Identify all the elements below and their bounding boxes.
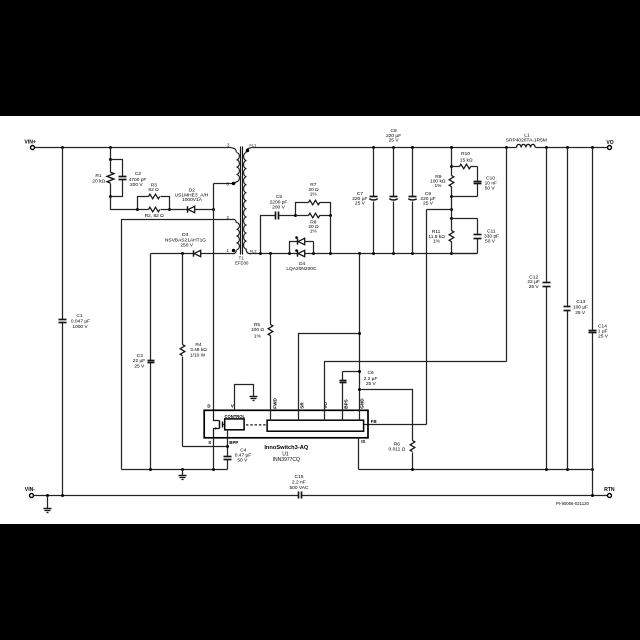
svg-text:IS: IS — [361, 439, 365, 444]
svg-text:50 V: 50 V — [237, 458, 248, 464]
svg-text:25 V: 25 V — [366, 381, 377, 387]
svg-text:INN3977CQ: INN3977CQ — [273, 457, 300, 463]
svg-text:20 kΩ: 20 kΩ — [92, 179, 105, 185]
svg-text:C13: C13 — [576, 299, 585, 305]
svg-text:2.2 nF: 2.2 nF — [292, 480, 306, 486]
svg-text:C11: C11 — [487, 229, 496, 235]
svg-text:200 V: 200 V — [130, 182, 143, 188]
svg-text:50 V: 50 V — [485, 186, 496, 192]
svg-text:R4: R4 — [195, 342, 201, 348]
svg-text:1%: 1% — [433, 239, 441, 245]
svg-text:R10: R10 — [461, 151, 470, 157]
svg-text:VIN-: VIN- — [25, 487, 35, 493]
svg-text:InnoSwitch3-AQ: InnoSwitch3-AQ — [264, 445, 308, 451]
svg-text:R1: R1 — [95, 173, 101, 179]
svg-text:1%: 1% — [434, 183, 442, 189]
svg-text:D3: D3 — [182, 232, 188, 238]
svg-text:VO: VO — [323, 402, 328, 409]
svg-text:15 kΩ: 15 kΩ — [460, 157, 473, 163]
svg-text:1/10 W: 1/10 W — [190, 352, 206, 358]
svg-text:1 µF: 1 µF — [598, 328, 608, 334]
svg-text:25 V: 25 V — [355, 200, 366, 206]
svg-text:0.47 µF: 0.47 µF — [235, 453, 252, 459]
svg-text:C10: C10 — [486, 176, 495, 182]
svg-text:200 V: 200 V — [272, 204, 285, 210]
svg-text:C5: C5 — [276, 194, 282, 200]
svg-text:D4: D4 — [299, 261, 305, 267]
svg-text:RTN: RTN — [604, 487, 615, 493]
svg-text:250 V: 250 V — [180, 242, 193, 248]
svg-text:CONTROL: CONTROL — [225, 414, 246, 419]
svg-text:VO: VO — [606, 140, 613, 146]
svg-text:1000 V: 1000 V — [72, 324, 88, 330]
svg-text:D: D — [207, 404, 210, 409]
svg-text:FL2: FL2 — [250, 248, 258, 253]
svg-text:100 µF: 100 µF — [573, 305, 588, 311]
svg-text:50 V: 50 V — [485, 239, 496, 245]
svg-text:25 V: 25 V — [134, 363, 145, 369]
svg-text:LQA20N200C: LQA20N200C — [286, 266, 317, 272]
svg-text:SR: SR — [299, 402, 304, 409]
svg-text:4700 pF: 4700 pF — [129, 177, 147, 183]
svg-text:PI-90066-021120: PI-90066-021120 — [556, 501, 589, 506]
svg-text:BPP: BPP — [229, 440, 238, 445]
svg-text:C1: C1 — [76, 313, 82, 319]
svg-text:3.48 kΩ: 3.48 kΩ — [190, 347, 207, 353]
svg-text:0.047 µF: 0.047 µF — [71, 319, 90, 325]
svg-text:VIN+: VIN+ — [24, 140, 35, 146]
svg-text:SRP4020TA-1R5M: SRP4020TA-1R5M — [506, 138, 547, 144]
svg-text:FL1: FL1 — [249, 143, 257, 148]
svg-text:C6: C6 — [367, 370, 373, 376]
svg-text:FB: FB — [371, 419, 377, 424]
svg-text:BPS: BPS — [343, 399, 348, 408]
svg-text:0.011 Ω: 0.011 Ω — [389, 447, 406, 453]
svg-text:1%: 1% — [310, 229, 318, 235]
svg-text:R5: R5 — [254, 322, 260, 328]
svg-text:25 V: 25 V — [423, 200, 434, 206]
svg-text:22 µF: 22 µF — [133, 358, 146, 364]
svg-text:2.2 µF: 2.2 µF — [364, 376, 378, 382]
svg-text:1%: 1% — [254, 334, 262, 340]
svg-text:S: S — [208, 440, 211, 445]
svg-text:C3: C3 — [137, 353, 143, 359]
svg-text:82 Ω: 82 Ω — [148, 187, 159, 193]
svg-text:C15: C15 — [295, 474, 304, 480]
svg-text:1%: 1% — [310, 191, 318, 197]
svg-text:EFD30: EFD30 — [235, 260, 249, 265]
svg-text:R2, 82 Ω: R2, 82 Ω — [145, 213, 165, 219]
svg-text:FWD: FWD — [272, 398, 277, 409]
svg-text:100 Ω: 100 Ω — [251, 327, 264, 333]
svg-text:V: V — [231, 404, 234, 409]
svg-text:25 V: 25 V — [389, 138, 400, 144]
svg-text:25 V: 25 V — [529, 284, 540, 290]
svg-text:500 VAC: 500 VAC — [289, 485, 309, 491]
svg-text:25 V: 25 V — [575, 310, 586, 316]
svg-text:1000V1A: 1000V1A — [182, 197, 203, 203]
svg-text:C2: C2 — [135, 171, 141, 177]
svg-text:25 V: 25 V — [598, 334, 609, 340]
